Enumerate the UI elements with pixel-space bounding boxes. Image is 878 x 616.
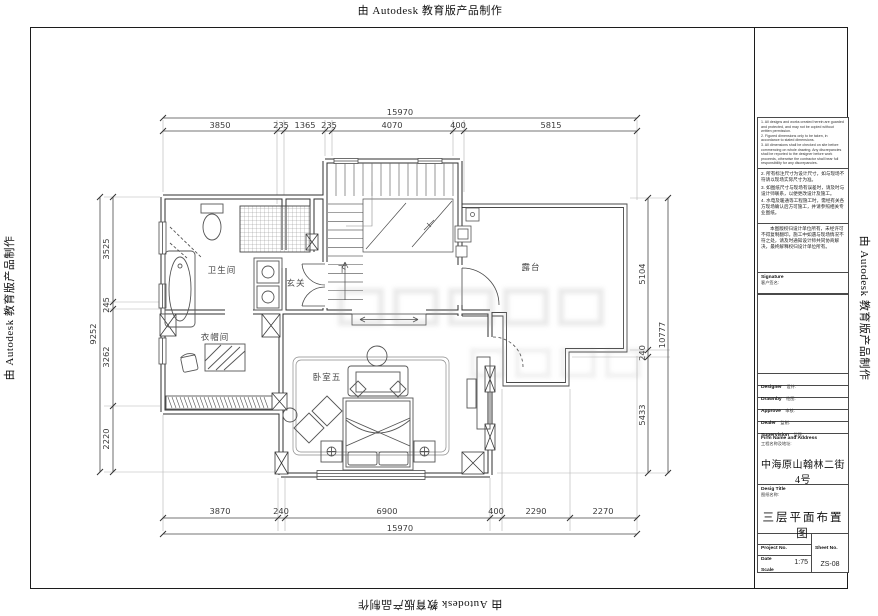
dim-bottom-total: 15970 — [387, 523, 413, 533]
dim-top-1: 235 — [273, 120, 289, 130]
tv — [467, 379, 476, 408]
dim-left-3: 2220 — [101, 428, 111, 449]
scale-label: Scale — [761, 568, 774, 573]
dim-top-0: 3850 — [209, 120, 230, 130]
label-bathroom: 卫生间 — [208, 265, 237, 276]
label-foyer: 玄关 — [286, 278, 305, 289]
scale-cell: Scale 1:75 — [758, 556, 811, 567]
signature-area — [757, 294, 849, 374]
drawing-title-label-cn: 图纸名称: — [761, 492, 845, 498]
sheet-no-cell: Sheet No. ZS-08 — [812, 534, 848, 572]
notes-paragraph: 本图版权归设计单位所有，未经许可不得复制翻印。施工中如遇与现场情况不符之处，请及… — [761, 226, 845, 250]
dim-bottom-4: 2290 — [525, 506, 546, 516]
autodesk-stamp-top: 由 Autodesk 教育版产品制作 — [320, 2, 540, 16]
notes-chinese-box: 2. 所有标注尺寸为设计尺寸，如与现场不符请以现场实际尺寸为准。 3. 如图纸尺… — [757, 168, 849, 224]
extension-lines — [104, 120, 670, 531]
shower-screen — [170, 227, 201, 258]
cad-sheet: 由 Autodesk 教育版产品制作 由 Autodesk 教育版产品制作 由 … — [0, 0, 878, 616]
terrace-door — [462, 268, 499, 305]
dim-right-0: 5104 — [637, 263, 647, 284]
dim-top-2: 1365 — [294, 120, 315, 130]
terrace-parapet — [462, 204, 627, 386]
field-dealer: Dealer 监制: — [757, 409, 849, 422]
column — [160, 314, 176, 336]
column — [272, 393, 287, 410]
loveseat — [348, 366, 408, 397]
dim-bottom-0: 3870 — [209, 506, 230, 516]
vanity-sinks — [254, 258, 282, 310]
dim-top-total: 15970 — [387, 107, 413, 117]
pillow — [350, 381, 366, 397]
nightstand-left — [321, 441, 342, 462]
autodesk-stamp-bottom: 由 Autodesk 教育版产品制作 — [320, 599, 540, 613]
floor-plan-canvas: 15970 3850 235 1365 235 4070 400 5815 38… — [30, 27, 755, 589]
dashed-door-terrace-east — [493, 337, 523, 367]
note-cn-3: 4. 水电及暖通等工程施工时，需经有关各方现场确认后方可施工，并请参照相关专业图… — [761, 198, 845, 215]
field-approve: Approve 审核: — [757, 397, 849, 410]
field-drawnby: Drawnby 绘图: — [757, 385, 849, 398]
firm-box: Firm Name and Address 工程名称及地址: 中海原山翰林二街4… — [757, 433, 849, 485]
title-block: 1. All designs and works created herein … — [757, 118, 849, 573]
column — [462, 452, 484, 474]
column — [275, 452, 288, 474]
dim-left-0: 3525 — [101, 238, 111, 259]
pillow — [390, 381, 406, 397]
bedroom-furniture — [283, 346, 490, 470]
chaise — [283, 396, 342, 443]
dim-right-total: 10777 — [657, 322, 667, 348]
chair — [180, 352, 198, 372]
dim-left-1: 245 — [101, 297, 111, 313]
shower-tile-floor — [240, 206, 310, 252]
notes-english: 1. All designs and works created herein … — [761, 120, 845, 166]
walls — [163, 161, 490, 475]
sliding-door-bedroom — [352, 314, 426, 325]
pillow — [348, 452, 377, 465]
dim-bottom-2: 6900 — [376, 506, 397, 516]
autodesk-stamp-left: 由 Autodesk 教育版产品制作 — [1, 198, 15, 418]
closet-island — [205, 344, 245, 371]
dim-top-5: 400 — [450, 120, 466, 130]
signature-label-cn: 客户签名: — [761, 280, 845, 286]
side-table — [283, 408, 297, 422]
autodesk-stamp-right: 由 Autodesk 教育版产品制作 — [859, 198, 873, 418]
bathroom-fixtures — [165, 204, 310, 327]
dim-top-3: 235 — [321, 120, 337, 130]
project-no-cell: Project No. — [758, 534, 811, 545]
bedroom-window — [317, 471, 425, 480]
dim-top-4: 4070 — [381, 120, 402, 130]
dim-right-2: 5433 — [637, 404, 647, 425]
field-supervision: Supervision 监理: — [757, 421, 849, 434]
dim-right-1: 240 — [637, 345, 647, 361]
pillow — [379, 452, 408, 465]
note-cn-1: 2. 所有标注尺寸为设计尺寸，如与现场不符请以现场实际尺寸为准。 — [761, 171, 845, 183]
label-stairs-down: 下 — [338, 265, 348, 275]
dim-top-6: 5815 — [540, 120, 561, 130]
ottoman — [367, 346, 387, 366]
scale-value: 1:75 — [794, 559, 808, 566]
label-bedroom5: 卧室五 — [313, 372, 342, 383]
label-terrace: 露台 — [521, 262, 540, 273]
field-designer: Designer 设计: — [757, 373, 849, 386]
bed — [343, 398, 413, 470]
dim-left-total: 9252 — [88, 323, 98, 344]
firm-label-cn: 工程名称及地址: — [761, 441, 845, 447]
hanging-rail — [166, 396, 272, 409]
column — [262, 314, 280, 337]
sheet-no-label: Sheet No. — [815, 546, 838, 551]
notes-english-box: 1. All designs and works created herein … — [757, 117, 849, 169]
label-cloakroom: 衣帽间 — [201, 332, 230, 343]
dim-bottom-5: 2270 — [592, 506, 613, 516]
firm-value: 中海原山翰林二街4号 — [761, 456, 845, 486]
note-cn-2: 3. 如图纸尺寸与现场有误差时，请及时与设计师联系，以便更改设计及施工。 — [761, 185, 845, 197]
notes-paragraph-box: 本图版权归设计单位所有，未经许可不得复制翻印。施工中如遇与现场情况不符之处，请及… — [757, 223, 849, 273]
toilet — [201, 204, 223, 240]
dim-bottom-3: 400 — [488, 506, 504, 516]
dim-left-2: 3262 — [101, 346, 111, 367]
staircase — [328, 163, 453, 300]
drawing-title-box: Desig Title 图纸名称: 三层平面布置图 — [757, 484, 849, 534]
dim-bottom-1: 240 — [273, 506, 289, 516]
sheet-no-value: ZS-08 — [812, 561, 848, 568]
nightstand-right — [414, 441, 435, 462]
cloakroom-furniture — [166, 344, 272, 409]
titleblock-footer: Project No. Date Scale 1:75 Sheet No. ZS… — [757, 533, 849, 573]
signature-box: Signature 客户签名: — [757, 272, 849, 294]
